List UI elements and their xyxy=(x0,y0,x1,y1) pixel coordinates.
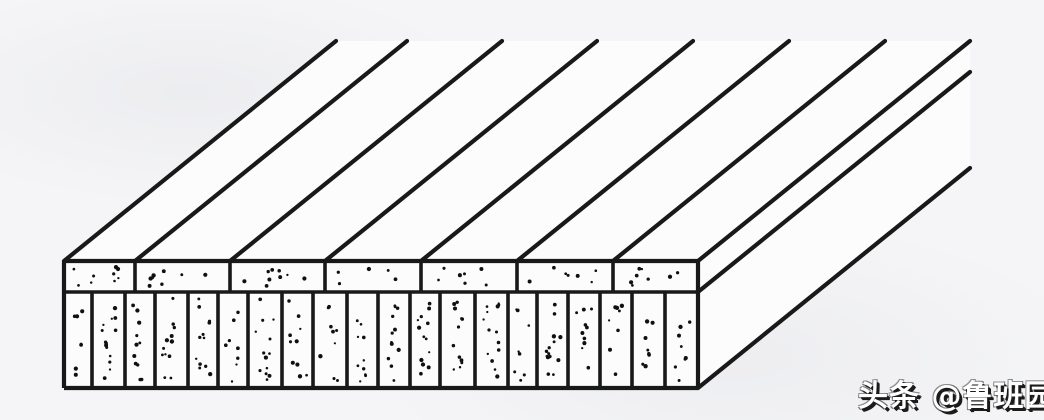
front-face xyxy=(64,261,698,388)
blockboard-diagram xyxy=(0,0,1044,420)
scanned-diagram-page: 头条 @鲁班园 xyxy=(0,0,1044,420)
watermark-text: 头条 @鲁班园 xyxy=(858,371,1044,415)
